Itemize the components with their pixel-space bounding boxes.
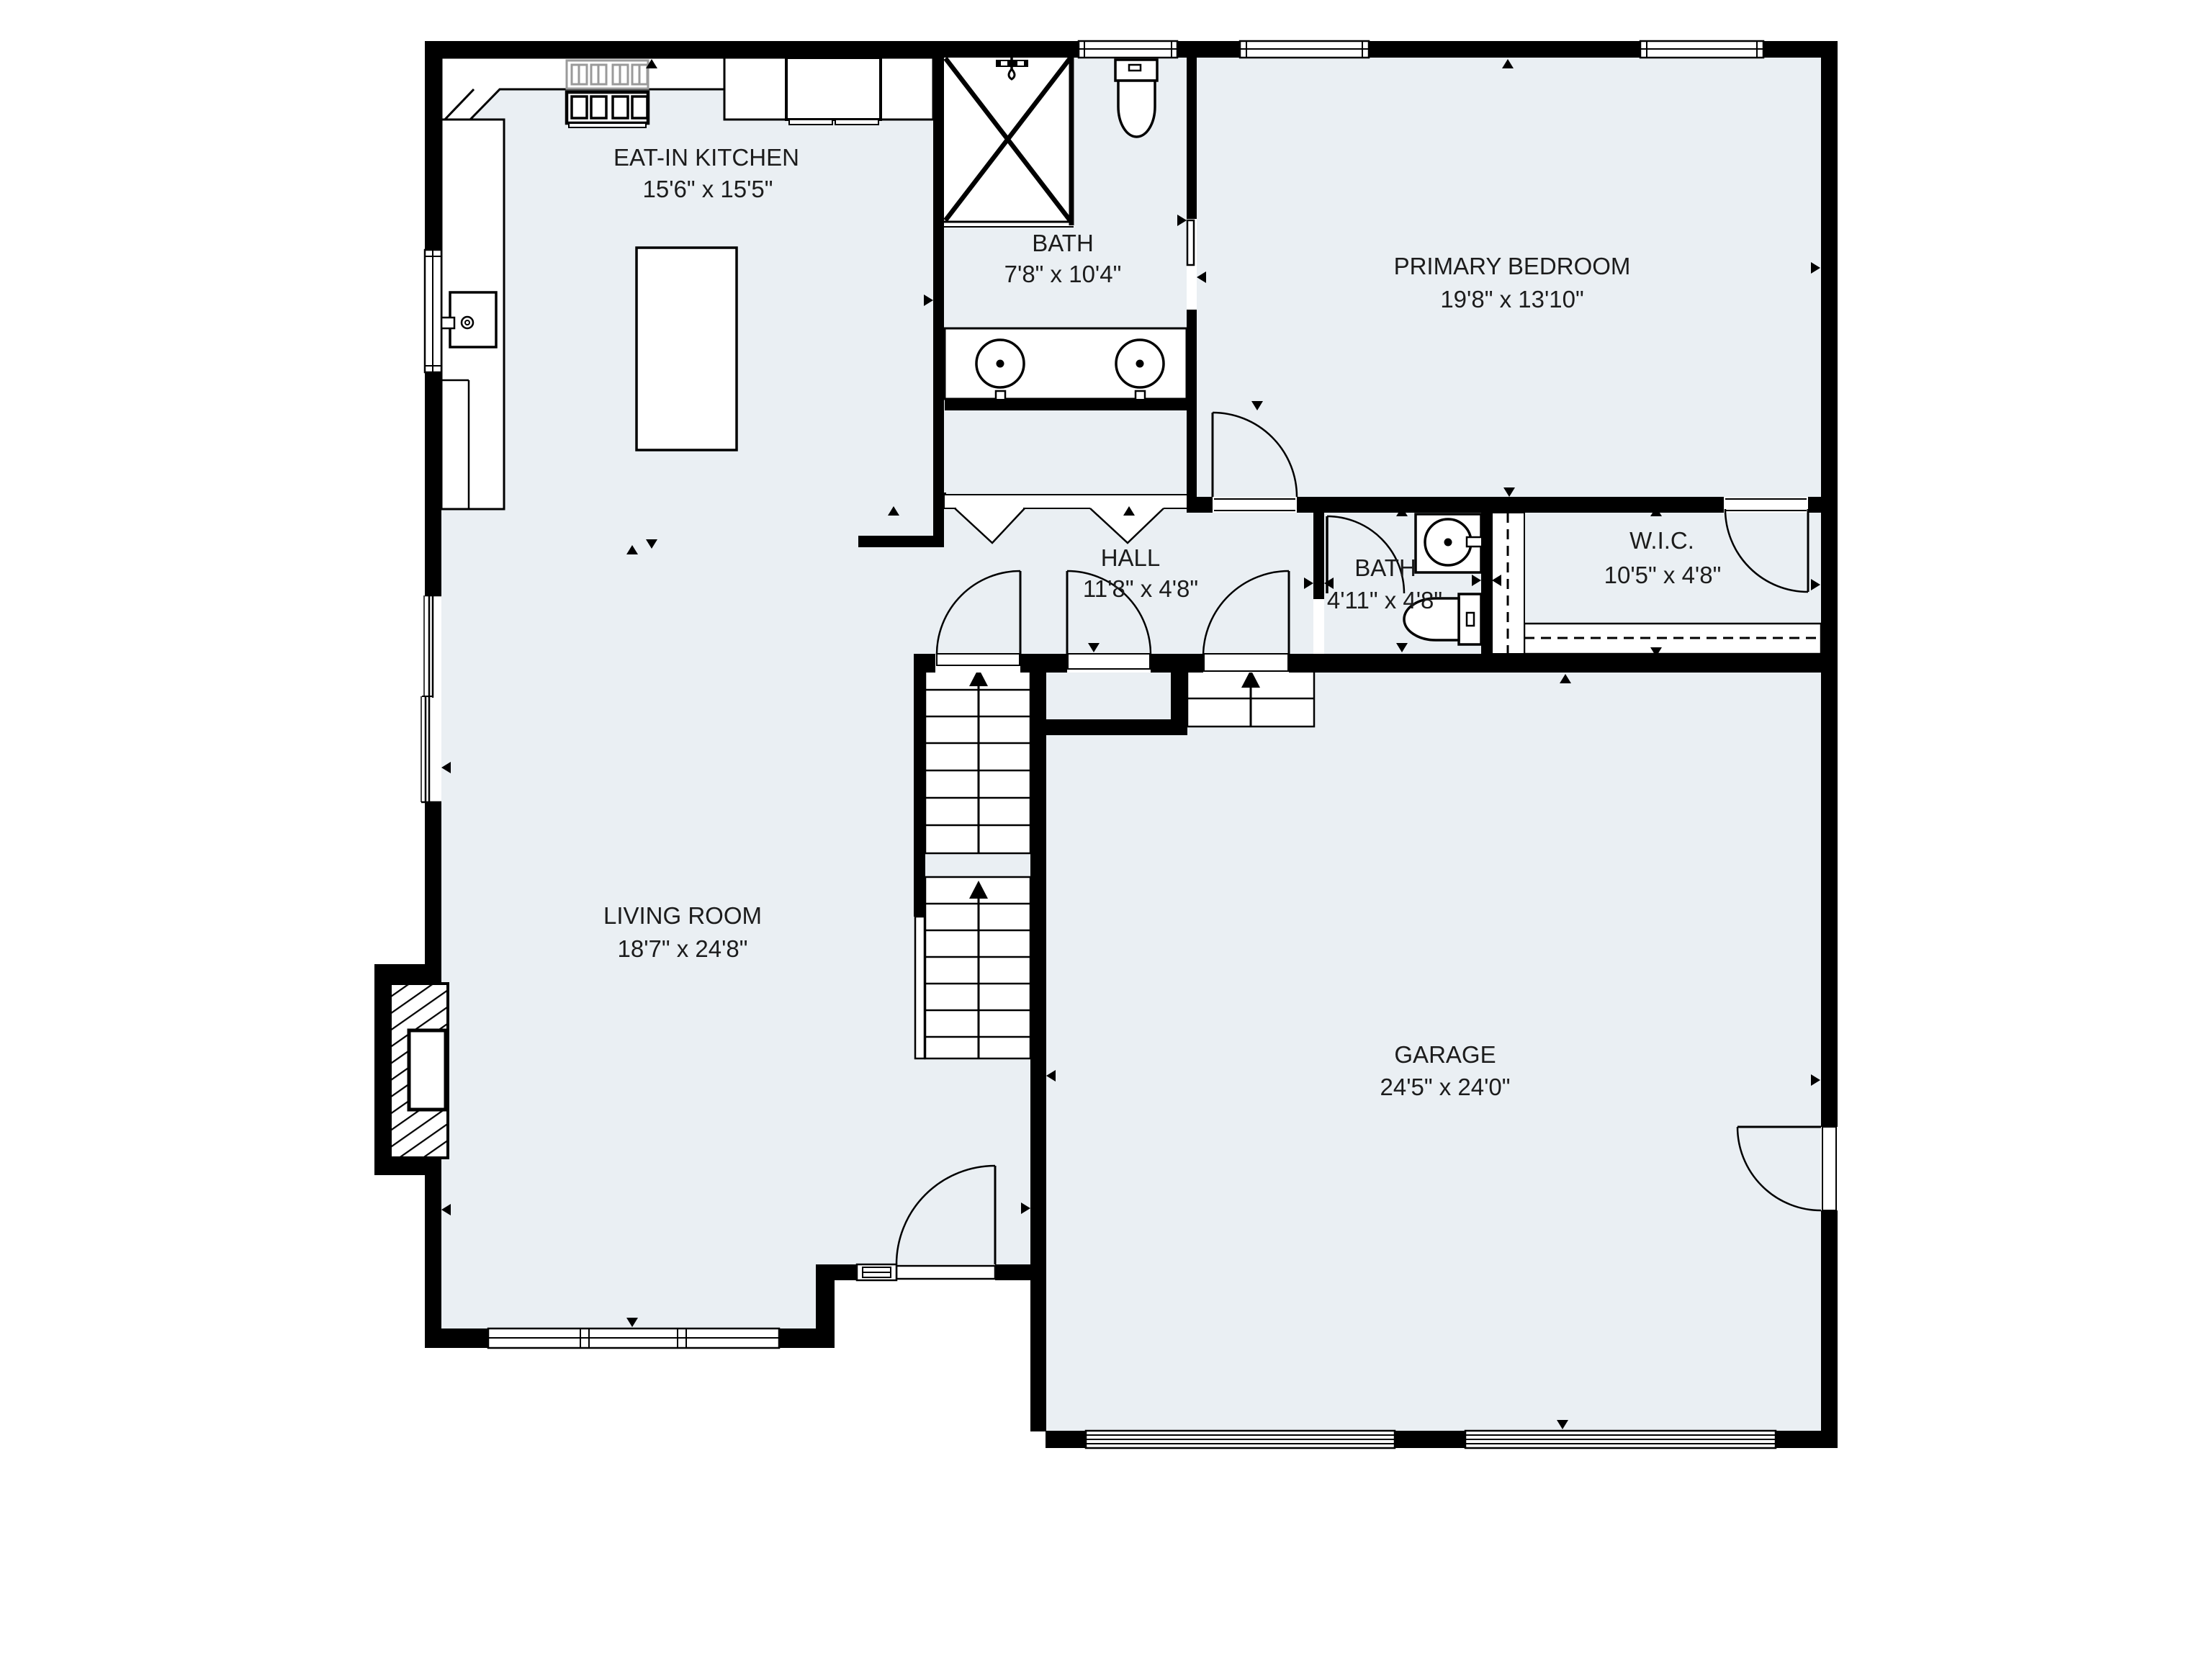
svg-text:19'8" x 13'10": 19'8" x 13'10" — [1440, 286, 1583, 313]
svg-text:24'5" x 24'0": 24'5" x 24'0" — [1380, 1074, 1511, 1100]
svg-text:W.I.C.: W.I.C. — [1629, 527, 1694, 554]
svg-text:PRIMARY BEDROOM: PRIMARY BEDROOM — [1394, 253, 1631, 279]
svg-text:15'6" x 15'5": 15'6" x 15'5" — [643, 176, 773, 202]
svg-text:HALL: HALL — [1101, 544, 1161, 571]
svg-text:EAT-IN KITCHEN: EAT-IN KITCHEN — [613, 144, 799, 171]
svg-text:BATH: BATH — [1354, 554, 1416, 581]
svg-text:18'7" x 24'8": 18'7" x 24'8" — [618, 935, 748, 962]
svg-text:10'5" x 4'8": 10'5" x 4'8" — [1604, 562, 1722, 588]
svg-text:7'8" x 10'4": 7'8" x 10'4" — [1004, 261, 1122, 287]
svg-text:GARAGE: GARAGE — [1394, 1041, 1496, 1068]
svg-text:4'11" x 4'8": 4'11" x 4'8" — [1327, 587, 1442, 613]
svg-text:BATH: BATH — [1032, 230, 1094, 256]
svg-text:11'8" x 4'8": 11'8" x 4'8" — [1083, 575, 1198, 602]
svg-text:LIVING ROOM: LIVING ROOM — [603, 902, 762, 929]
